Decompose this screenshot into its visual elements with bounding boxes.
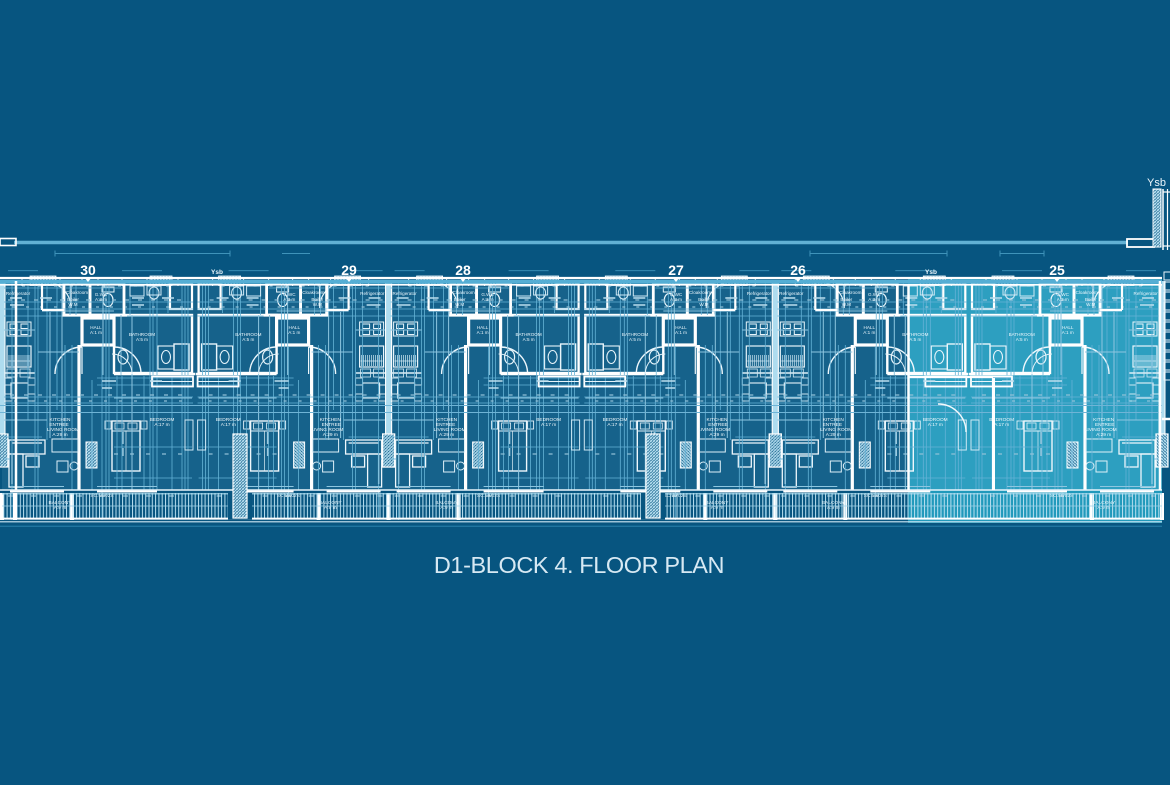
svg-text:D1-BLOCK 4. FLOOR PLAN: D1-BLOCK 4. FLOOR PLAN bbox=[434, 552, 724, 578]
svg-text:27: 27 bbox=[668, 262, 684, 278]
svg-text:Ysb: Ysb bbox=[211, 269, 223, 276]
svg-text:29: 29 bbox=[341, 262, 357, 278]
svg-text:30: 30 bbox=[80, 262, 96, 278]
svg-text:26: 26 bbox=[790, 262, 806, 278]
svg-text:25: 25 bbox=[1049, 262, 1065, 278]
svg-text:28: 28 bbox=[455, 262, 471, 278]
svg-text:Ysb: Ysb bbox=[1147, 177, 1166, 189]
svg-text:Ysb: Ysb bbox=[925, 269, 937, 276]
